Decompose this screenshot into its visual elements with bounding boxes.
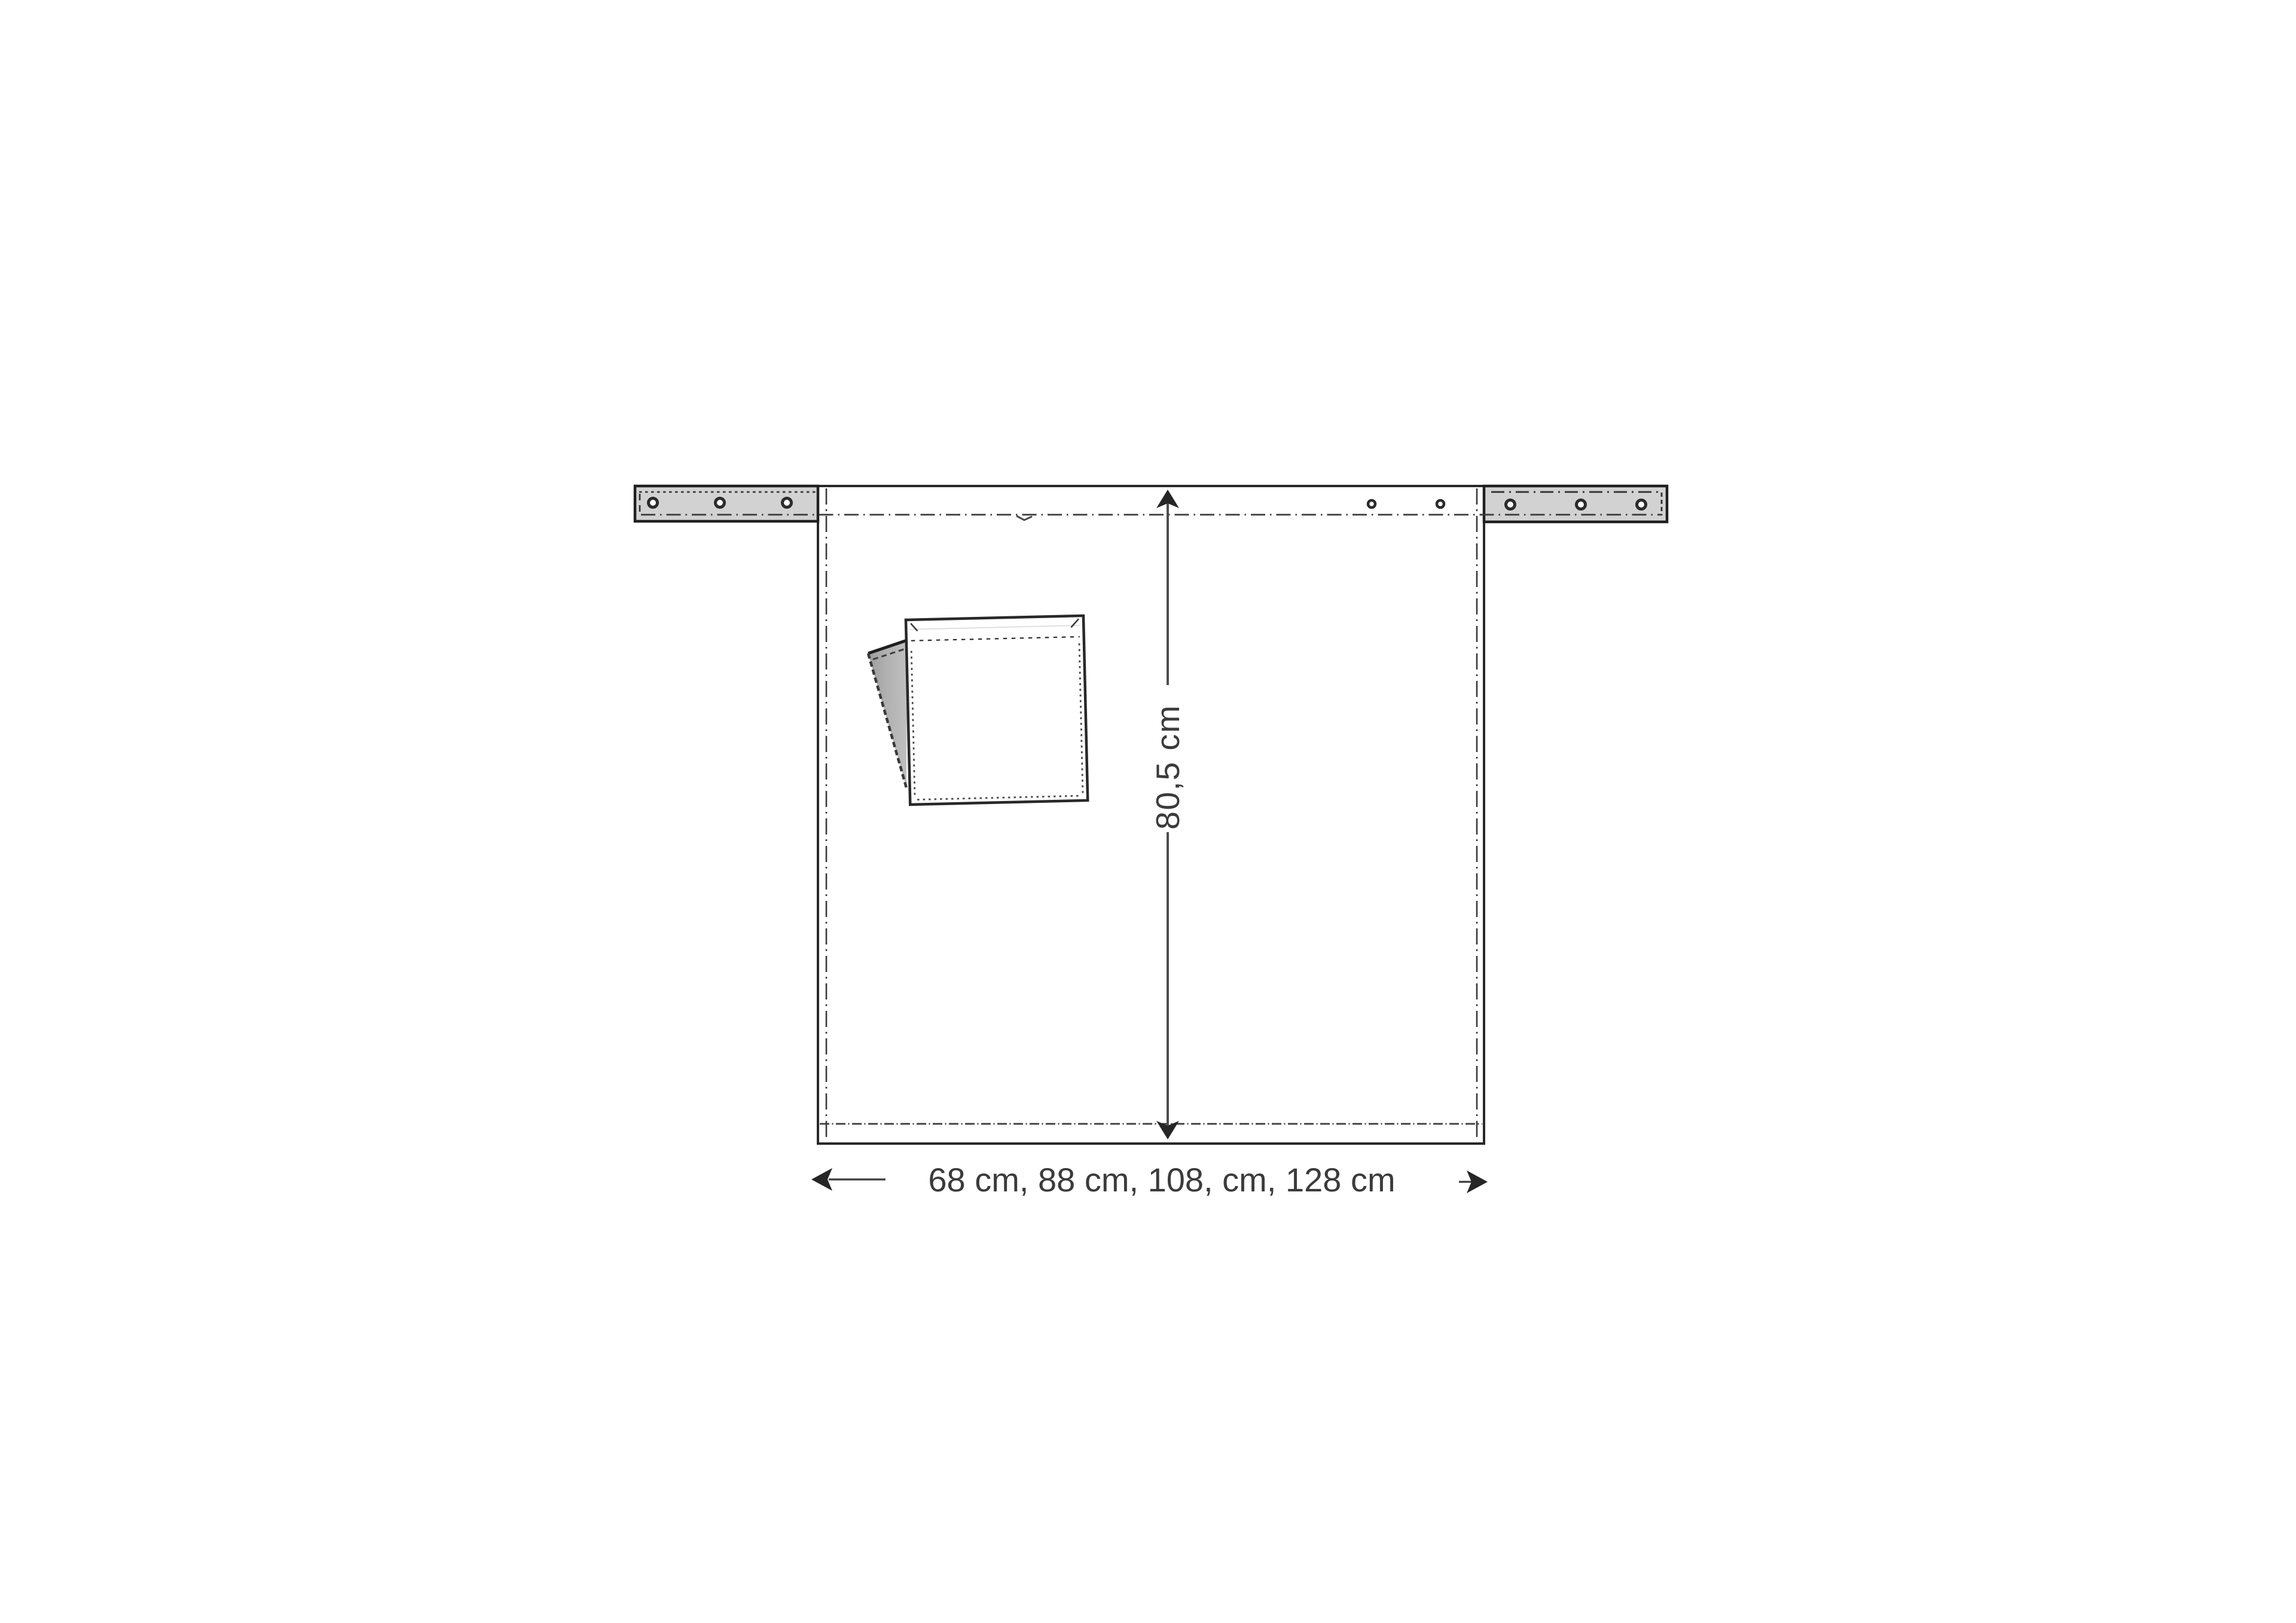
svg-text:68 cm, 88 cm, 108, cm, 128 cm: 68 cm, 88 cm, 108, cm, 128 cm <box>928 1161 1395 1199</box>
svg-text:80,5 cm: 80,5 cm <box>1149 704 1186 830</box>
